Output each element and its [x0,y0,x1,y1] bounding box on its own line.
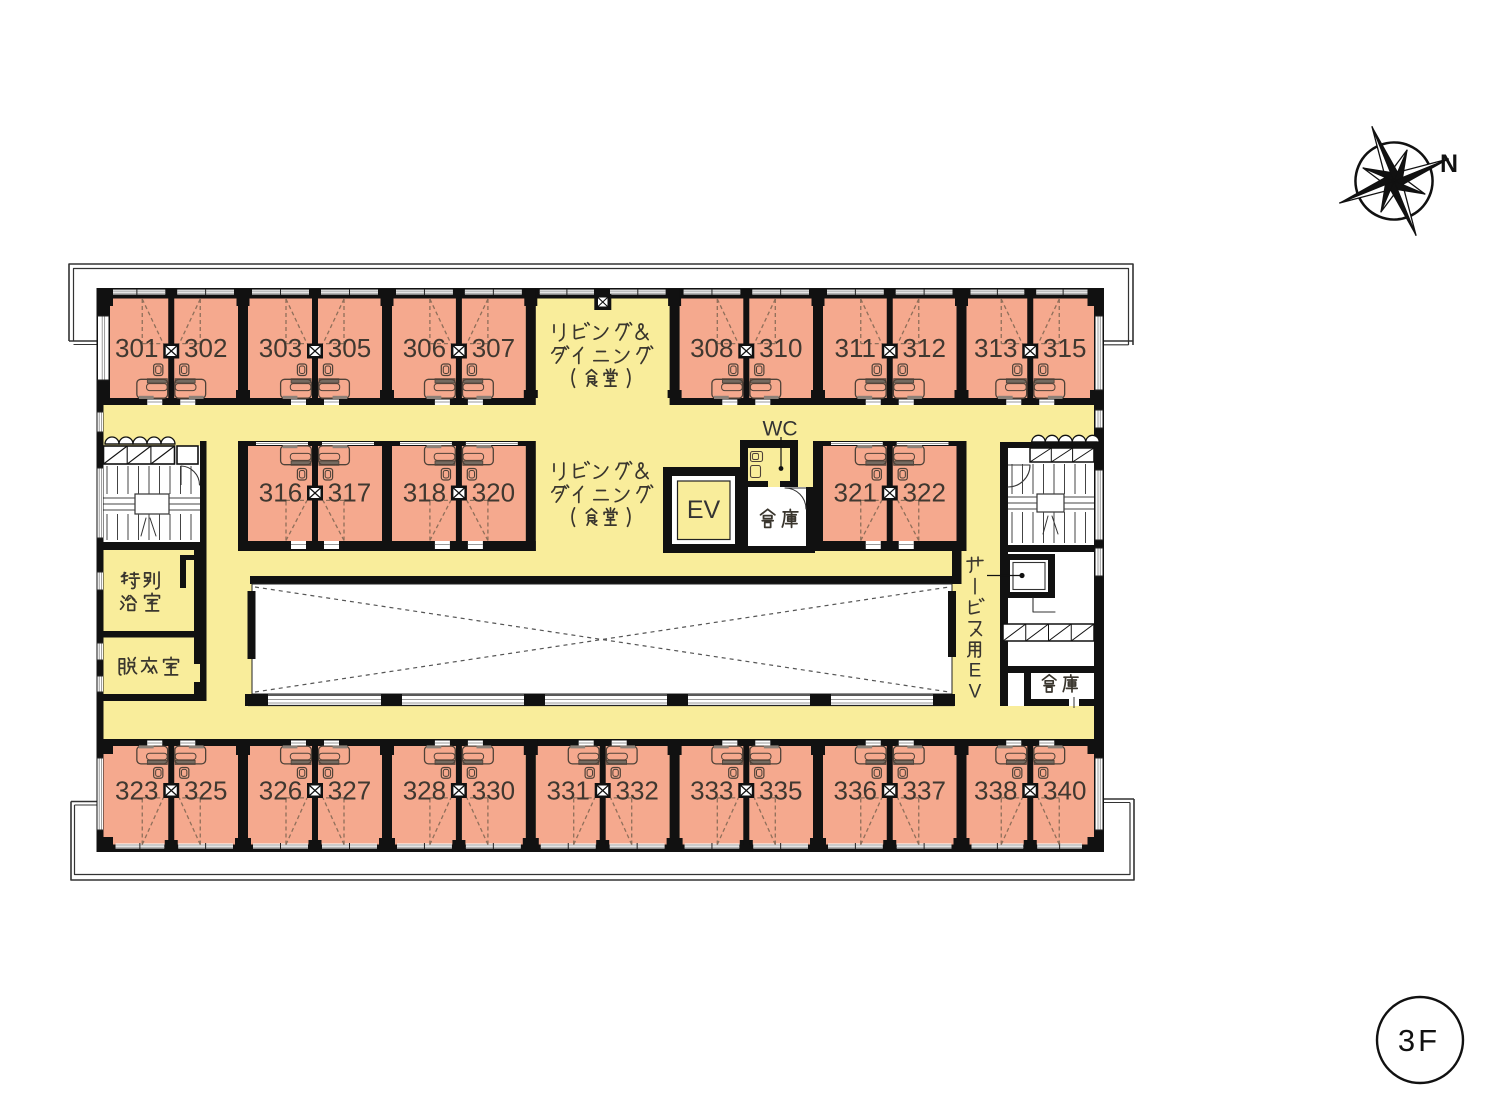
svg-text:315: 315 [1043,333,1086,363]
svg-text:317: 317 [328,478,371,508]
svg-text:333: 333 [690,776,733,806]
svg-text:302: 302 [184,333,227,363]
svg-text:322: 322 [903,478,946,508]
svg-text:305: 305 [328,333,371,363]
svg-text:328: 328 [403,776,446,806]
svg-text:316: 316 [259,478,302,508]
svg-text:311: 311 [835,333,876,363]
svg-text:3F: 3F [1398,1023,1440,1058]
svg-text:V: V [969,682,982,703]
svg-text:WC: WC [763,418,798,441]
svg-text:306: 306 [403,333,446,363]
svg-text:326: 326 [259,776,302,806]
svg-text:308: 308 [690,333,733,363]
svg-text:335: 335 [759,776,802,806]
svg-text:312: 312 [903,333,946,363]
svg-text:327: 327 [328,776,371,806]
svg-text:321: 321 [834,478,877,508]
svg-text:323: 323 [115,776,158,806]
svg-text:N: N [1440,150,1458,178]
svg-text:336: 336 [834,776,877,806]
svg-text:307: 307 [472,333,515,363]
svg-text:330: 330 [472,776,515,806]
svg-text:318: 318 [403,478,446,508]
svg-text:E: E [969,661,982,682]
svg-text:313: 313 [974,333,1017,363]
svg-text:301: 301 [115,333,158,363]
svg-text:340: 340 [1043,776,1086,806]
svg-text:325: 325 [184,776,227,806]
svg-text:320: 320 [472,478,515,508]
svg-text:303: 303 [259,333,302,363]
svg-text:337: 337 [903,776,946,806]
svg-text:EV: EV [687,496,721,524]
svg-text:310: 310 [759,333,802,363]
svg-text:338: 338 [974,776,1017,806]
svg-text:331: 331 [547,776,590,806]
svg-text:332: 332 [616,776,659,806]
